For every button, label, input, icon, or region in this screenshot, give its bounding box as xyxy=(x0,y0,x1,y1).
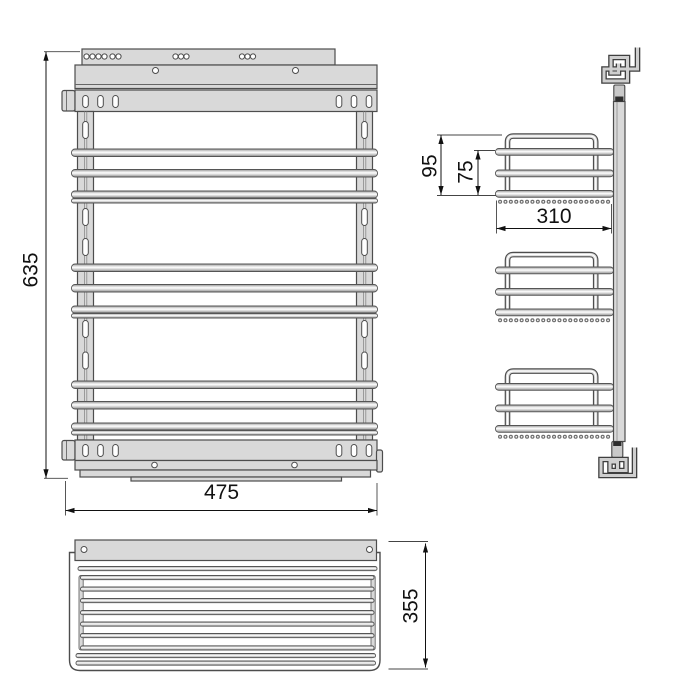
front-outer-slide xyxy=(75,65,377,89)
dim-depth-label: 355 xyxy=(400,588,423,623)
dim-basket-depth-label: 310 xyxy=(536,205,571,228)
front-basket-wires-level-2 xyxy=(72,264,378,318)
dimension-310: 310 xyxy=(497,201,612,234)
front-bottom-strip xyxy=(80,470,371,477)
front-bottom-slide xyxy=(75,461,377,471)
dimension-355: 355 xyxy=(389,542,429,670)
side-vertical-rail xyxy=(614,102,626,442)
front-bottom-left-tab xyxy=(62,441,75,461)
dim-height-label: 635 xyxy=(20,252,43,287)
dimension-635: 635 xyxy=(20,52,81,479)
dim-basket-side-height-label: 75 xyxy=(455,160,478,183)
front-left-post xyxy=(78,112,94,441)
side-top-bracket xyxy=(604,48,638,102)
pullout-basket-drawing: 635 475 xyxy=(0,0,700,700)
dim-width-label: 475 xyxy=(204,481,239,504)
front-top-rail xyxy=(75,90,377,112)
side-basket-1 xyxy=(496,136,614,202)
top-view xyxy=(70,540,381,671)
technical-drawing-page: 635 475 xyxy=(0,0,700,700)
dimension-475: 475 xyxy=(66,481,378,516)
front-bottom-rail xyxy=(75,440,377,461)
front-basket-wires-level-1 xyxy=(72,149,378,203)
front-right-post xyxy=(357,112,373,441)
top-mounting-strip xyxy=(75,540,377,561)
front-view xyxy=(62,49,383,481)
front-basket-wires-level-3 xyxy=(72,381,378,435)
side-view xyxy=(496,48,638,476)
side-bottom-bracket xyxy=(601,442,635,476)
front-top-left-tab xyxy=(62,91,75,112)
dimension-75: 75 xyxy=(455,151,496,196)
side-basket-2 xyxy=(496,255,614,321)
dim-basket-total-height-label: 95 xyxy=(419,154,442,177)
side-basket-3 xyxy=(496,371,614,437)
